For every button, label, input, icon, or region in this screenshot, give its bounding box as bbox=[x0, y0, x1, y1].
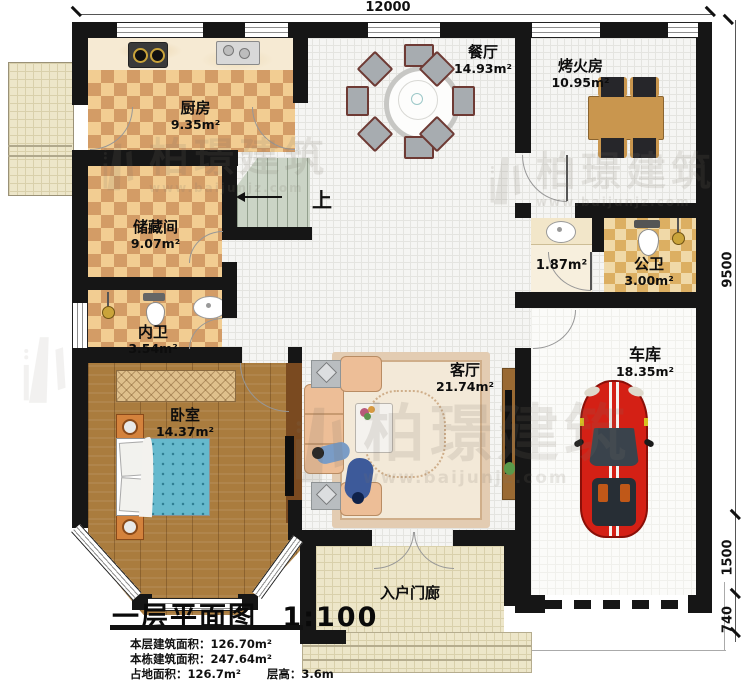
dim-label-right-main: 9500 bbox=[721, 247, 736, 293]
car-engine-detail bbox=[598, 484, 608, 502]
window bbox=[117, 22, 203, 38]
window bbox=[532, 22, 600, 38]
room-name: 储藏间 bbox=[108, 219, 203, 236]
vestibule-basin bbox=[546, 221, 576, 243]
room-name: 公卫 bbox=[608, 256, 690, 273]
wall bbox=[504, 546, 520, 606]
room-name: 卧室 bbox=[140, 407, 230, 424]
room-area: 9.07m² bbox=[108, 236, 203, 251]
wall bbox=[203, 22, 245, 38]
wall bbox=[440, 22, 532, 38]
stat-label: 本栋建筑面积： bbox=[130, 652, 211, 666]
kitchen-sink bbox=[216, 41, 260, 65]
nightstand-lamp bbox=[122, 519, 138, 535]
stat-row: 占地面积：126.7m²层高：3.6m bbox=[130, 667, 334, 682]
armchair bbox=[340, 356, 382, 392]
window bbox=[368, 22, 440, 38]
room-area: 3.54m² bbox=[113, 341, 193, 356]
wall bbox=[72, 22, 88, 105]
tv-bedroom bbox=[285, 436, 294, 496]
wall bbox=[288, 500, 302, 540]
garage-door-opening bbox=[545, 600, 688, 609]
room-area: 1.87m² bbox=[531, 258, 592, 274]
dim-tick bbox=[705, 6, 716, 17]
room-label-bedroom: 卧室 14.37m² bbox=[140, 407, 230, 439]
car-windshield bbox=[589, 428, 639, 466]
basin-drain bbox=[206, 303, 211, 308]
kitchen-counter bbox=[88, 38, 295, 70]
porch-step bbox=[302, 660, 532, 673]
room-label-public-bath: 公卫 3.00m² bbox=[608, 256, 690, 288]
stat-value: 126.7m² bbox=[188, 667, 241, 681]
stat-label: 占地面积： bbox=[130, 667, 188, 681]
nightstand-lamp bbox=[122, 419, 138, 435]
bed bbox=[116, 438, 210, 516]
room-label-storage: 储藏间 9.07m² bbox=[108, 219, 203, 251]
wall bbox=[222, 227, 312, 240]
person-head bbox=[312, 447, 324, 459]
room-area: 10.95m² bbox=[528, 75, 633, 90]
patio bbox=[8, 62, 74, 196]
room-label-vestibule: 1.87m² bbox=[531, 258, 592, 274]
wall bbox=[222, 290, 237, 318]
room-label-private-bath: 内卫 3.54m² bbox=[113, 324, 193, 356]
room-label-garage: 车库 18.35m² bbox=[595, 346, 695, 379]
stat-value: 126.70m² bbox=[211, 637, 272, 651]
wall bbox=[696, 22, 712, 613]
watermark-logo-icon bbox=[12, 332, 76, 408]
patio-line bbox=[8, 155, 72, 157]
room-label-kitchen: 厨房 9.35m² bbox=[148, 100, 243, 132]
flower-decor bbox=[368, 406, 375, 413]
room-name: 内卫 bbox=[113, 324, 193, 341]
title-underline bbox=[110, 625, 303, 630]
wall bbox=[600, 22, 668, 38]
wardrobe bbox=[116, 370, 236, 402]
wall bbox=[222, 262, 237, 277]
room-name: 烤火房 bbox=[528, 58, 633, 75]
room-name: 客厅 bbox=[410, 362, 520, 379]
wall bbox=[293, 38, 308, 103]
floor-plan-canvas: 上 bbox=[0, 0, 750, 687]
door-leaf bbox=[566, 155, 568, 201]
stairs-direction-label: 上 bbox=[312, 184, 332, 213]
dim-tick bbox=[723, 14, 734, 25]
toilet-tank bbox=[634, 220, 660, 228]
flower-decor bbox=[364, 413, 371, 420]
watermark bbox=[12, 332, 76, 408]
stat-label: 本层建筑面积： bbox=[130, 637, 211, 651]
plant bbox=[504, 462, 515, 475]
wall bbox=[688, 595, 712, 613]
dining-chair bbox=[346, 86, 369, 116]
stat-value: 3.6m bbox=[301, 667, 333, 681]
window bbox=[245, 22, 288, 38]
stat-row: 本栋建筑面积：247.64m² bbox=[130, 652, 334, 667]
room-label-dining: 餐厅 14.93m² bbox=[433, 44, 533, 76]
room-label-living: 客厅 21.74m² bbox=[410, 362, 520, 394]
car bbox=[580, 380, 648, 538]
stat-value: 247.64m² bbox=[211, 652, 272, 666]
sink-basin bbox=[223, 45, 234, 56]
room-area: 14.93m² bbox=[433, 61, 533, 76]
stove-burner bbox=[133, 48, 148, 63]
porch-step bbox=[302, 646, 532, 660]
stats-block: 本层建筑面积：126.70m² 本栋建筑面积：247.64m² 占地面积：126… bbox=[130, 637, 334, 682]
wall bbox=[288, 22, 368, 38]
wall bbox=[575, 203, 712, 218]
room-area: 9.35m² bbox=[148, 117, 243, 132]
toilet-tank bbox=[143, 293, 165, 301]
fire-room-chair bbox=[630, 138, 659, 158]
stat-row: 本层建筑面积：126.70m² bbox=[130, 637, 334, 652]
wall bbox=[453, 530, 531, 546]
fire-room-table bbox=[588, 96, 664, 140]
sink-basin bbox=[239, 48, 250, 59]
shower-head bbox=[672, 232, 685, 245]
stairs-arrowhead bbox=[236, 192, 245, 202]
fire-room-chair bbox=[630, 77, 659, 97]
room-name: 车库 bbox=[595, 346, 695, 364]
table-centerpiece bbox=[411, 93, 423, 105]
wall bbox=[515, 292, 712, 308]
person-head bbox=[352, 492, 364, 504]
window bbox=[72, 303, 88, 348]
patio-line bbox=[8, 145, 72, 147]
room-name: 厨房 bbox=[148, 100, 243, 117]
room-area: 14.37m² bbox=[140, 424, 230, 439]
apron-line bbox=[530, 650, 726, 651]
dim-label-top: 12000 bbox=[360, 0, 416, 15]
stairs-arrow bbox=[244, 196, 282, 198]
dim-label-right-small: 740 bbox=[721, 603, 736, 637]
window bbox=[668, 22, 698, 38]
wall bbox=[592, 218, 604, 252]
room-area: 3.00m² bbox=[608, 273, 690, 288]
blanket bbox=[148, 439, 209, 515]
wall bbox=[222, 163, 237, 230]
wall bbox=[288, 347, 302, 363]
wall bbox=[88, 150, 238, 166]
car-marker bbox=[644, 418, 648, 426]
room-label-fire-room: 烤火房 10.95m² bbox=[528, 58, 633, 90]
wall bbox=[515, 203, 531, 218]
room-name: 餐厅 bbox=[433, 44, 533, 61]
dim-label-right-mid: 1500 bbox=[721, 537, 736, 579]
car-engine-detail bbox=[620, 484, 630, 502]
room-area: 21.74m² bbox=[410, 379, 520, 394]
shower-head bbox=[102, 306, 115, 319]
wall bbox=[72, 277, 237, 290]
wall bbox=[300, 530, 372, 546]
dining-chair bbox=[452, 86, 475, 116]
stove-burner bbox=[150, 48, 165, 63]
fire-room-chair bbox=[598, 138, 627, 158]
car-marker bbox=[580, 418, 584, 426]
room-area: 18.35m² bbox=[595, 364, 695, 379]
stat-label: 层高： bbox=[267, 667, 302, 681]
wall bbox=[72, 348, 88, 508]
dim-tick bbox=[71, 6, 82, 17]
basin-drain bbox=[557, 227, 562, 232]
